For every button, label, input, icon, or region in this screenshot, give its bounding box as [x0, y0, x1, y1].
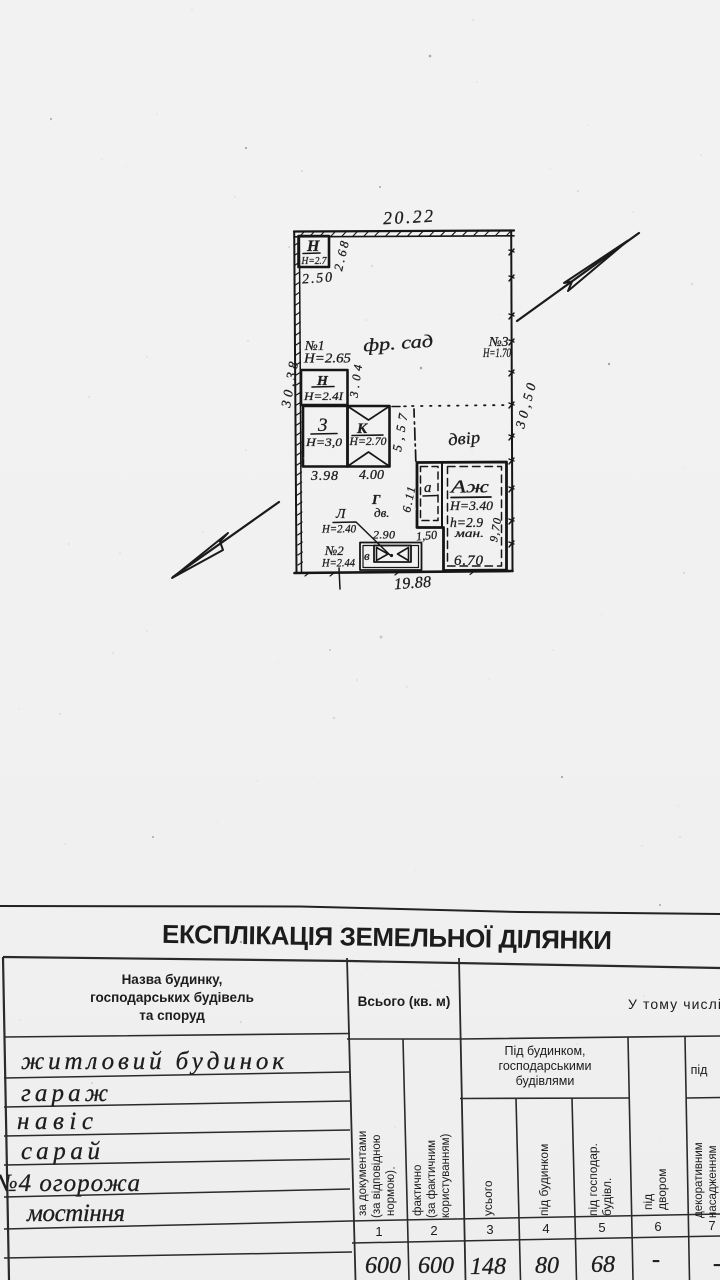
svg-text:5: 5	[598, 1220, 605, 1235]
svg-text:Н=3.40: Н=3.40	[449, 498, 494, 513]
svg-text:під господар.: під господар.	[586, 1143, 600, 1216]
svg-text:господарськими: господарськими	[499, 1059, 592, 1073]
svg-text:80: 80	[535, 1253, 559, 1279]
svg-text:а: а	[424, 480, 432, 496]
svg-text:1: 1	[375, 1224, 382, 1239]
svg-text:2.50: 2.50	[302, 270, 333, 287]
svg-text:фр. сад: фр. сад	[362, 331, 433, 356]
svg-text:будівл.: будівл.	[600, 1178, 614, 1216]
svg-text:Н=2.7: Н=2.7	[301, 255, 327, 267]
svg-text:3: 3	[317, 415, 328, 436]
svg-text:1,50: 1,50	[415, 528, 437, 544]
svg-text:господарських будівель: господарських будівель	[90, 990, 254, 1005]
svg-text:4: 4	[542, 1221, 549, 1236]
svg-text:19.88: 19.88	[393, 574, 431, 594]
svg-text:будівлями: будівлями	[516, 1074, 575, 1088]
svg-text:7: 7	[708, 1218, 715, 1233]
svg-text:Н=2.40: Н=2.40	[321, 522, 356, 536]
svg-text:та споруд: та споруд	[139, 1008, 205, 1023]
svg-text:20.22: 20.22	[383, 206, 434, 229]
svg-text:(за відповідною: (за відповідною	[371, 1134, 383, 1218]
svg-text:Під будинком,: Під будинком,	[504, 1044, 585, 1058]
svg-text:ЕКСПЛІКАЦІЯ ЗЕМЕЛЬНОЇ ДІЛЯНКИ: ЕКСПЛІКАЦІЯ ЗЕМЕЛЬНОЇ ДІЛЯНКИ	[162, 919, 612, 955]
svg-text:Н=2.4І: Н=2.4І	[303, 389, 344, 403]
svg-text:усього: усього	[481, 1180, 495, 1216]
svg-text:600: 600	[365, 1253, 401, 1279]
svg-text:ман.: ман.	[454, 526, 484, 540]
svg-text:Н=2.65: Н=2.65	[303, 351, 351, 366]
svg-text:№4 огорожа: №4 огорожа	[0, 1170, 140, 1197]
svg-text:за документами: за документами	[357, 1131, 369, 1216]
svg-text:Н=1.70: Н=1.70	[482, 346, 511, 360]
svg-text:двором: двором	[655, 1168, 669, 1210]
svg-text:(за фактичним: (за фактичним	[426, 1140, 438, 1218]
svg-text:4.00: 4.00	[359, 468, 384, 483]
svg-text:2.68: 2.68	[331, 239, 352, 272]
svg-text:навіс: навіс	[17, 1108, 93, 1135]
svg-text:дв.: дв.	[374, 505, 389, 520]
svg-text:68: 68	[591, 1252, 615, 1278]
svg-text:30,50: 30,50	[512, 381, 539, 431]
svg-text:6: 6	[654, 1219, 661, 1234]
svg-text:Н=3,0: Н=3,0	[305, 435, 342, 449]
svg-text:2: 2	[430, 1223, 437, 1238]
svg-text:5,57: 5,57	[389, 412, 410, 453]
svg-text:нормою): нормою)	[385, 1170, 397, 1216]
svg-text:6.70: 6.70	[454, 553, 484, 569]
svg-text:під будинком: під будинком	[537, 1144, 551, 1216]
svg-text:сарай: сарай	[21, 1138, 101, 1165]
svg-text:під: під	[691, 1063, 709, 1077]
svg-text:30,38: 30,38	[278, 360, 301, 409]
svg-text:-: -	[713, 1251, 720, 1277]
svg-text:Л: Л	[335, 507, 347, 522]
svg-text:2.90: 2.90	[373, 528, 395, 542]
svg-text:під: під	[641, 1194, 655, 1210]
svg-text:Аж: Аж	[450, 477, 490, 497]
svg-text:Н=2.44: Н=2.44	[321, 556, 355, 570]
svg-text:фактично: фактично	[412, 1165, 424, 1216]
svg-text:Всього (кв. м): Всього (кв. м)	[358, 994, 451, 1009]
svg-text:-: -	[652, 1247, 660, 1273]
svg-text:користуванням): користуванням)	[440, 1134, 452, 1218]
svg-text:600: 600	[418, 1253, 454, 1279]
svg-text:гараж: гараж	[21, 1080, 108, 1107]
svg-text:насадженням: насадженням	[707, 1145, 719, 1218]
svg-text:У тому числі: У тому числі	[628, 996, 720, 1012]
svg-text:3.98: 3.98	[310, 469, 338, 484]
svg-text:мостіння: мостіння	[26, 1200, 125, 1227]
svg-text:двір: двір	[447, 428, 481, 450]
svg-text:148: 148	[470, 1254, 506, 1280]
svg-text:в: в	[364, 548, 370, 563]
svg-text:Н=2.70: Н=2.70	[348, 436, 386, 448]
svg-text:3.04: 3.04	[346, 364, 365, 400]
svg-text:житловий будинок: житловий будинок	[21, 1048, 284, 1075]
svg-text:Назва будинку,: Назва будинку,	[122, 972, 223, 987]
svg-text:3: 3	[486, 1222, 493, 1237]
svg-text:декоративним: декоративним	[693, 1142, 705, 1218]
